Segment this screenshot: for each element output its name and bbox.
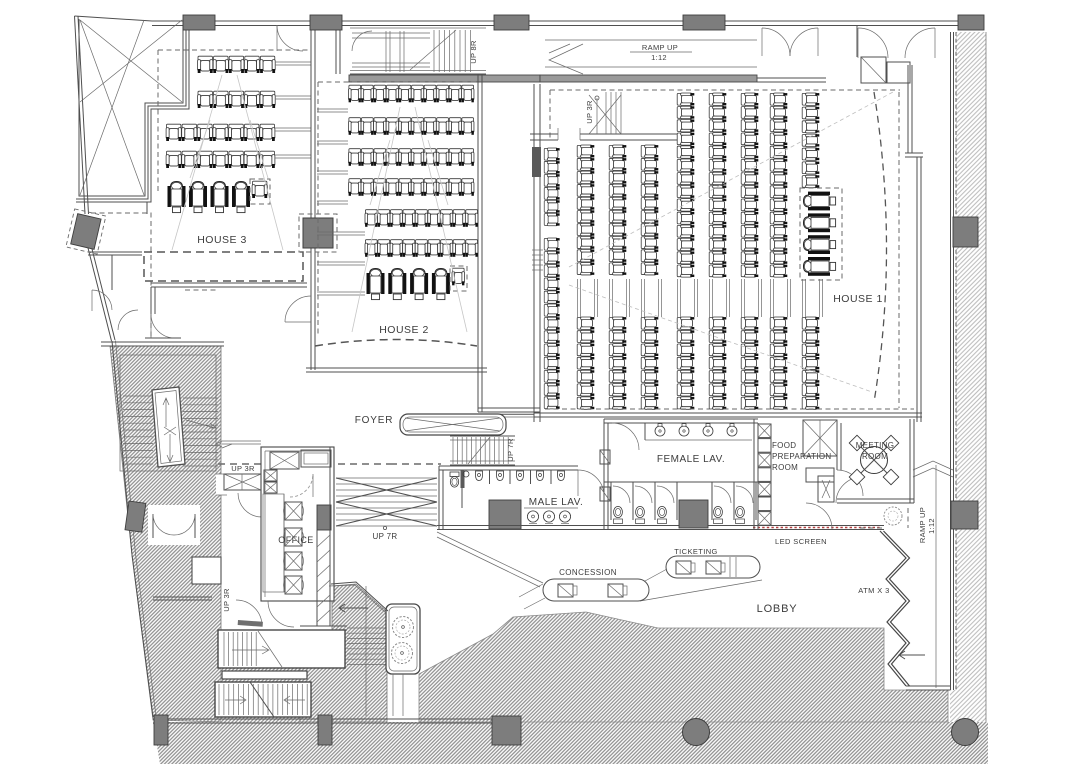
svg-text:MALE LAV.: MALE LAV. bbox=[529, 497, 584, 508]
svg-text:LED SCREEN: LED SCREEN bbox=[775, 537, 827, 546]
svg-text:ATM X 3: ATM X 3 bbox=[858, 586, 889, 595]
svg-text:ROOM: ROOM bbox=[862, 452, 888, 461]
svg-text:TICKETING: TICKETING bbox=[674, 547, 718, 556]
svg-text:HOUSE 2: HOUSE 2 bbox=[379, 324, 429, 336]
svg-text:UP 7R: UP 7R bbox=[373, 532, 398, 541]
svg-text:FOOD: FOOD bbox=[772, 441, 796, 450]
svg-text:RAMP UP: RAMP UP bbox=[918, 507, 927, 543]
svg-text:UP 3R: UP 3R bbox=[585, 100, 594, 124]
svg-text:ROOM: ROOM bbox=[772, 463, 798, 472]
svg-text:UP 8R: UP 8R bbox=[469, 40, 478, 64]
svg-text:UP 3R: UP 3R bbox=[231, 464, 255, 473]
svg-text:FOYER: FOYER bbox=[355, 415, 393, 426]
svg-text:RAMP UP: RAMP UP bbox=[642, 43, 678, 52]
svg-text:OFFICE: OFFICE bbox=[278, 535, 313, 545]
svg-text:HOUSE 3: HOUSE 3 bbox=[197, 234, 247, 246]
svg-text:FEMALE LAV.: FEMALE LAV. bbox=[657, 454, 725, 465]
svg-text:UP 3R: UP 3R bbox=[222, 588, 231, 612]
svg-text:CONCESSION: CONCESSION bbox=[559, 568, 617, 577]
svg-text:1:12: 1:12 bbox=[927, 518, 936, 534]
svg-text:LOBBY: LOBBY bbox=[757, 603, 798, 615]
svg-text:1:12: 1:12 bbox=[651, 53, 667, 62]
svg-text:HOUSE 1: HOUSE 1 bbox=[833, 293, 883, 305]
svg-text:MEETING: MEETING bbox=[856, 441, 895, 450]
svg-text:UP 7R: UP 7R bbox=[506, 438, 515, 462]
